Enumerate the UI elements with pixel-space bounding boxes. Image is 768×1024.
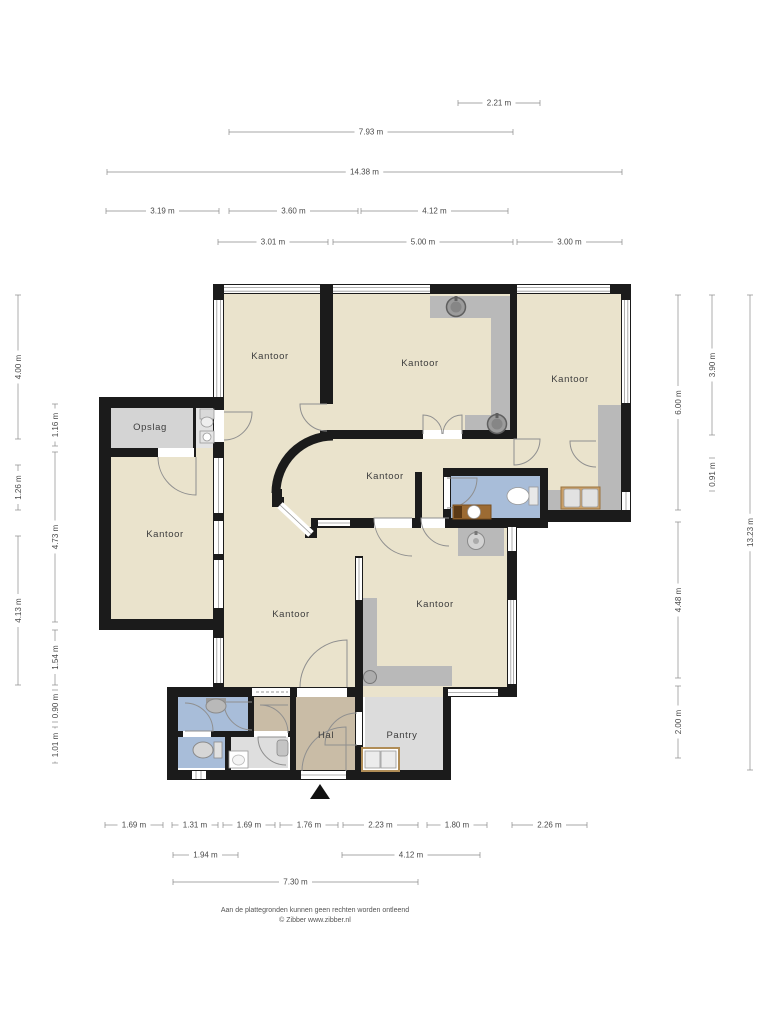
pantry-counter-icon <box>362 748 399 771</box>
room-label: Opslag <box>133 422 167 433</box>
dimension: 0.91 m <box>708 458 717 491</box>
dimension-label: 0.90 m <box>51 693 60 718</box>
dimension-label: 4.13 m <box>14 598 23 623</box>
footer-copyright: © Zibber www.zibber.nl <box>115 916 515 926</box>
dimension-label: 3.00 m <box>557 238 582 247</box>
dimension: 1.94 m <box>173 851 238 860</box>
dimension-label: 4.12 m <box>422 207 447 216</box>
dimension: 5.00 m <box>333 238 513 247</box>
dimension: 1.80 m <box>427 821 487 830</box>
dimension: 1.54 m <box>51 630 60 685</box>
toilet-icon <box>193 742 222 758</box>
floor-plan: KantoorKantoorKantoorKantoorKantoorKanto… <box>0 0 768 1024</box>
dimension: 1.69 m <box>105 821 163 830</box>
dimension: 4.48 m <box>674 522 683 678</box>
dimension: 4.73 m <box>51 452 60 622</box>
dimension: 13.23 m <box>746 295 755 770</box>
dimension: 7.30 m <box>173 878 418 887</box>
dimension-label: 2.26 m <box>537 821 562 830</box>
dimension-label: 1.54 m <box>51 645 60 670</box>
dimension: 1.26 m <box>14 465 23 510</box>
room-label: Kantoor <box>366 471 403 482</box>
dimension-label: 1.26 m <box>14 475 23 500</box>
dimension: 2.26 m <box>512 821 587 830</box>
room-label: Kantoor <box>416 599 453 610</box>
dimension: 4.12 m <box>361 207 508 216</box>
dimension-label: 3.60 m <box>281 207 306 216</box>
dimension: 7.93 m <box>229 128 513 137</box>
dimension-label: 2.21 m <box>487 99 512 108</box>
dimension: 4.12 m <box>342 851 480 860</box>
dimension-label: 6.00 m <box>674 390 683 415</box>
dimension: 3.19 m <box>106 207 219 216</box>
floor-plan-page: KantoorKantoorKantoorKantoorKantoorKanto… <box>0 0 768 1024</box>
dimension-label: 1.31 m <box>183 821 208 830</box>
kitchen-sink-icon <box>561 487 600 509</box>
dimension-label: 4.12 m <box>399 851 424 860</box>
dimension: 3.01 m <box>218 238 328 247</box>
dimension: 6.00 m <box>674 295 683 510</box>
dimension-label: 1.69 m <box>122 821 147 830</box>
dimension: 2.23 m <box>343 821 418 830</box>
dimension: 1.16 m <box>51 404 60 446</box>
dimension-label: 1.76 m <box>297 821 322 830</box>
sink-icon <box>206 698 226 713</box>
dimension: 1.76 m <box>280 821 338 830</box>
dimension-label: 3.01 m <box>261 238 286 247</box>
dimension: 2.00 m <box>674 686 683 758</box>
vestibule-floor <box>252 697 290 733</box>
dimension-label: 7.30 m <box>283 878 308 887</box>
room-label: Kantoor <box>272 609 309 620</box>
dimension: 2.21 m <box>458 99 540 108</box>
room-label: Kantoor <box>251 351 288 362</box>
washer-icon <box>229 751 248 768</box>
dimension-label: 4.73 m <box>51 524 60 549</box>
dimension-label: 3.19 m <box>150 207 175 216</box>
dimension: 4.13 m <box>14 536 23 685</box>
dimension-label: 1.80 m <box>445 821 470 830</box>
toilet-icon <box>200 409 214 427</box>
sink-icon <box>200 431 214 443</box>
dimension-label: 2.23 m <box>368 821 393 830</box>
dimension-label: 1.94 m <box>193 851 218 860</box>
shower-sink-icon <box>277 740 288 756</box>
dimension: 3.60 m <box>229 207 358 216</box>
dimension-label: 4.00 m <box>14 354 23 379</box>
dimension-label: 14.38 m <box>350 168 379 177</box>
dimension: 1.01 m <box>51 727 60 763</box>
dimension: 0.90 m <box>51 690 60 722</box>
dimension: 14.38 m <box>107 168 622 177</box>
room-label: Kantoor <box>551 374 588 385</box>
dimension-label: 13.23 m <box>746 518 755 547</box>
dimension-label: 0.91 m <box>708 462 717 487</box>
dimension: 1.31 m <box>172 821 218 830</box>
dimension-label: 3.90 m <box>708 352 717 377</box>
dimension: 3.90 m <box>708 295 717 435</box>
room-label: Pantry <box>386 730 417 741</box>
vanity-sink-icon <box>453 505 491 519</box>
dimension: 3.00 m <box>517 238 622 247</box>
dimension-label: 7.93 m <box>359 128 384 137</box>
room-label: Hal <box>318 730 334 741</box>
drain-icon <box>364 671 377 684</box>
footer: Aan de plattegronden kunnen geen rechten… <box>115 906 515 926</box>
room-label: Kantoor <box>146 529 183 540</box>
footer-disclaimer: Aan de plattegronden kunnen geen rechten… <box>115 906 515 916</box>
dimension-label: 5.00 m <box>411 238 436 247</box>
toilet-icon <box>507 487 538 505</box>
entrance-arrow-icon <box>310 784 330 799</box>
dimension-label: 2.00 m <box>674 709 683 734</box>
room-label: Kantoor <box>401 358 438 369</box>
dimension-label: 1.16 m <box>51 412 60 437</box>
dimension: 1.69 m <box>223 821 275 830</box>
dimension-label: 1.01 m <box>51 732 60 757</box>
dimension-label: 4.48 m <box>674 587 683 612</box>
dimension-label: 1.69 m <box>237 821 262 830</box>
dimension: 4.00 m <box>14 295 23 439</box>
